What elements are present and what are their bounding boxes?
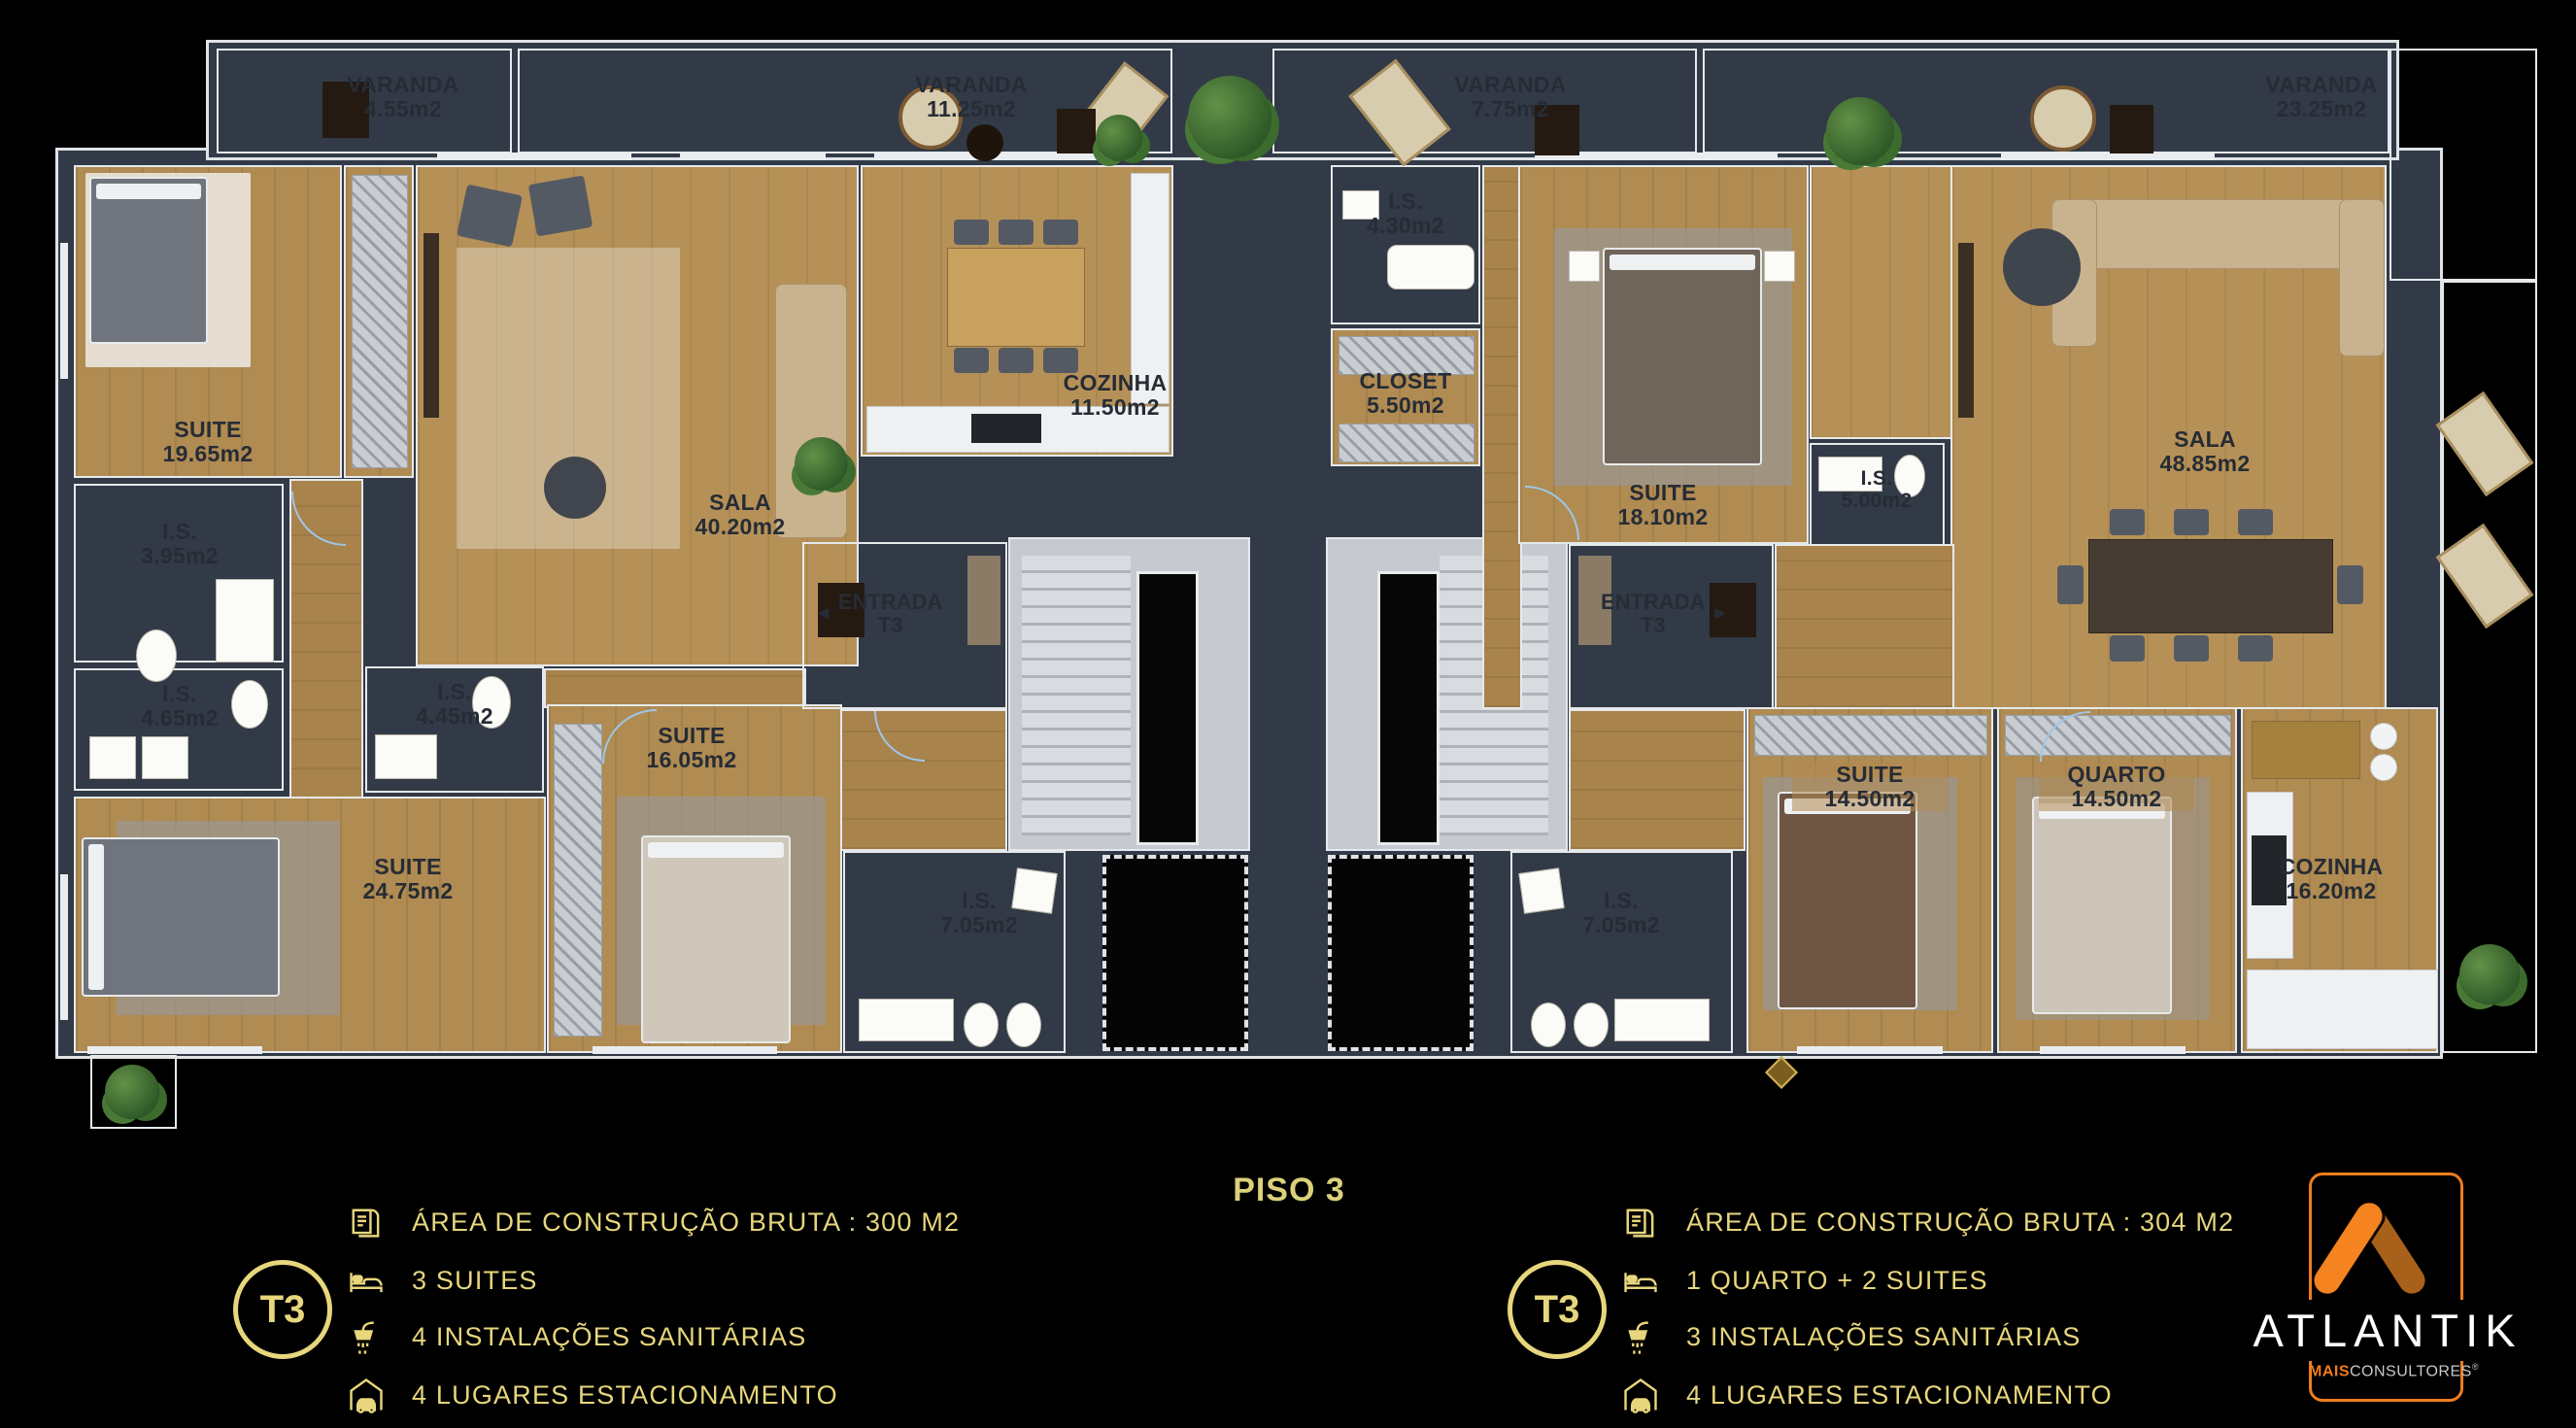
side-terrace <box>2444 283 2535 1051</box>
pouf <box>544 457 606 519</box>
window <box>1797 1046 1943 1054</box>
chair <box>1043 220 1078 245</box>
room-label-entrada-left: ◄ ENTRADAT3 <box>814 591 942 637</box>
wardrobe <box>1339 424 1474 462</box>
wardrobe <box>2005 715 2231 756</box>
shower-icon <box>346 1316 387 1357</box>
chaise <box>2339 199 2385 357</box>
bed-icon <box>1620 1260 1661 1301</box>
room-label-is-705-left: I.S.7.05m2 <box>901 889 1057 937</box>
sala-right-wing <box>1812 167 1952 437</box>
plant <box>1188 76 1271 159</box>
bed-icon <box>346 1260 387 1301</box>
chair <box>2110 509 2145 535</box>
window <box>60 874 68 1020</box>
room-label-is-430: I.S.4.30m2 <box>1328 189 1483 238</box>
room-label-is-395: I.S.3.95m2 <box>102 520 257 568</box>
bed <box>89 177 208 344</box>
legend-right-row-area: ÁREA DE CONSTRUÇÃO BRUTA : 304 M2 <box>1620 1197 2234 1247</box>
room-label-varanda-4: VARANDA23.25m2 <box>2244 73 2399 121</box>
plant <box>2459 944 2520 1004</box>
room-label-closet: CLOSET5.50m2 <box>1328 369 1483 418</box>
room-label-is-445: I.S.4.45m2 <box>377 680 532 729</box>
room-label-varanda-3: VARANDA7.75m2 <box>1433 73 1588 121</box>
room-label-suite-16: SUITE16.05m2 <box>614 724 769 772</box>
floor-plan-page: VARANDA4.55m2 VARANDA11.25m2 VARANDA7.75… <box>0 0 2576 1428</box>
toilet <box>136 629 177 682</box>
room-label-quarto-14: QUARTO14.50m2 <box>2039 763 2194 811</box>
legend-left-row-suites: 3 SUITES <box>346 1255 538 1306</box>
window <box>2040 1046 2186 1054</box>
sink <box>142 736 188 779</box>
corridor-right-b <box>1777 546 1952 707</box>
plant <box>105 1065 159 1119</box>
chair <box>999 220 1034 245</box>
kitchen-counter <box>2247 969 2438 1049</box>
chair <box>2110 635 2145 662</box>
chair <box>954 348 989 373</box>
armchair <box>528 175 593 236</box>
room-label-cozinha-left: COZINHA11.50m2 <box>1037 371 1193 420</box>
shower-icon <box>1620 1316 1661 1357</box>
room-label-sala-right: SALA48.85m2 <box>2127 427 2283 476</box>
stool <box>2370 754 2397 781</box>
room-label-is-465: I.S.4.65m2 <box>102 682 257 731</box>
sofa <box>2069 199 2362 269</box>
blueprint-icon <box>1620 1202 1661 1242</box>
type-badge-right: T3 <box>1508 1260 1607 1359</box>
bed <box>2032 797 2172 1014</box>
vanity <box>216 579 274 663</box>
room-label-varanda-2: VARANDA11.25m2 <box>894 73 1049 121</box>
bathtub <box>1387 245 1474 289</box>
corridor-right-c <box>1571 711 1744 849</box>
window <box>593 1046 777 1054</box>
room-label-suite-14: SUITE14.50m2 <box>1792 763 1948 811</box>
plant <box>1826 97 1894 165</box>
plant <box>795 437 848 491</box>
sink <box>89 736 136 779</box>
nightstand <box>1764 251 1795 282</box>
bed <box>1778 792 1917 1009</box>
chair <box>2238 509 2273 535</box>
stair-void-right <box>1377 571 1440 845</box>
toilet <box>964 1003 999 1047</box>
balcony-corner <box>2391 51 2535 279</box>
corridor-left-b <box>546 670 804 706</box>
brand-tagline: MAISCONSULTORES® <box>2309 1362 2457 1380</box>
window <box>874 153 1127 160</box>
bed <box>641 835 791 1043</box>
legend-right-row-rooms: 1 QUARTO + 2 SUITES <box>1620 1255 1988 1306</box>
chair <box>2174 509 2209 535</box>
chair <box>999 348 1034 373</box>
blueprint-icon <box>346 1202 387 1242</box>
wardrobe <box>554 724 602 1037</box>
chair <box>2057 565 2084 604</box>
cooktop <box>971 414 1041 443</box>
window <box>2001 153 2215 160</box>
legend-left-row-sanitary: 4 INSTALAÇÕES SANITÁRIAS <box>346 1311 806 1362</box>
brand-name: ATLANTIK <box>2246 1300 2529 1361</box>
corridor-right-a <box>1484 167 1520 707</box>
orientation-cube-icon <box>1765 1056 1798 1089</box>
chair <box>2174 635 2209 662</box>
dining-table <box>947 248 1085 347</box>
entry-arrow-icon: ◄ <box>814 604 832 625</box>
elevator-shaft-left <box>1102 855 1248 1051</box>
vanity <box>1614 999 1710 1041</box>
kitchen-island <box>2252 721 2360 779</box>
stairs-left <box>1022 556 1131 835</box>
doormat <box>1057 109 1096 153</box>
window <box>680 153 826 160</box>
window <box>60 243 68 379</box>
legend-right-row-sanitary: 3 INSTALAÇÕES SANITÁRIAS <box>1620 1311 2081 1362</box>
room-label-varanda-1: VARANDA4.55m2 <box>325 73 481 121</box>
bidet <box>1574 1003 1609 1047</box>
stair-void-left <box>1136 571 1199 845</box>
chair <box>954 220 989 245</box>
tv-console <box>424 233 439 418</box>
plant <box>1096 115 1142 161</box>
legend-right-row-parking: 4 LUGARES ESTACIONAMENTO <box>1620 1370 2113 1420</box>
wardrobe <box>352 175 408 468</box>
wardrobe <box>1754 715 1987 756</box>
chair <box>2337 565 2363 604</box>
elevator-shaft-right <box>1328 855 1474 1051</box>
window <box>87 1046 262 1054</box>
round-rug <box>2003 228 2081 306</box>
nightstand <box>1569 251 1600 282</box>
toilet <box>1531 1003 1566 1047</box>
room-label-is-705-right: I.S.7.05m2 <box>1543 889 1699 937</box>
room-label-suite-19: SUITE19.65m2 <box>130 418 286 466</box>
armchair <box>457 185 523 248</box>
bed <box>1603 248 1762 465</box>
type-badge-left: T3 <box>233 1260 332 1359</box>
garage-car-icon <box>346 1375 387 1415</box>
garage-car-icon <box>1620 1375 1661 1415</box>
room-label-is-500: I.S.5.00m2 <box>1799 468 1954 512</box>
side-table <box>966 124 1003 161</box>
vanity <box>859 999 954 1041</box>
room-label-suite-24: SUITE24.75m2 <box>330 855 486 903</box>
hanging-chair <box>2030 85 2096 152</box>
room-label-cozinha-right: COZINHA16.20m2 <box>2254 855 2409 903</box>
room-label-suite-18: SUITE18.10m2 <box>1585 481 1741 529</box>
room-label-entrada-right: ENTRADAT3 ► <box>1601 591 1729 637</box>
stool <box>2370 723 2397 750</box>
legend-left-row-parking: 4 LUGARES ESTACIONAMENTO <box>346 1370 838 1420</box>
entry-arrow-icon: ► <box>1712 604 1730 625</box>
chair <box>2238 635 2273 662</box>
window <box>437 153 631 160</box>
bidet <box>1006 1003 1041 1047</box>
legend-left-row-area: ÁREA DE CONSTRUÇÃO BRUTA : 300 M2 <box>346 1197 960 1247</box>
page-title: PISO 3 <box>1095 1172 1483 1209</box>
room-label-sala-left: SALA40.20m2 <box>662 491 818 539</box>
bed <box>82 837 280 997</box>
console-table <box>967 556 1000 645</box>
tv-console <box>1958 243 1974 418</box>
vanity <box>375 734 437 779</box>
doormat <box>2110 105 2153 153</box>
dining-table <box>2088 539 2333 633</box>
